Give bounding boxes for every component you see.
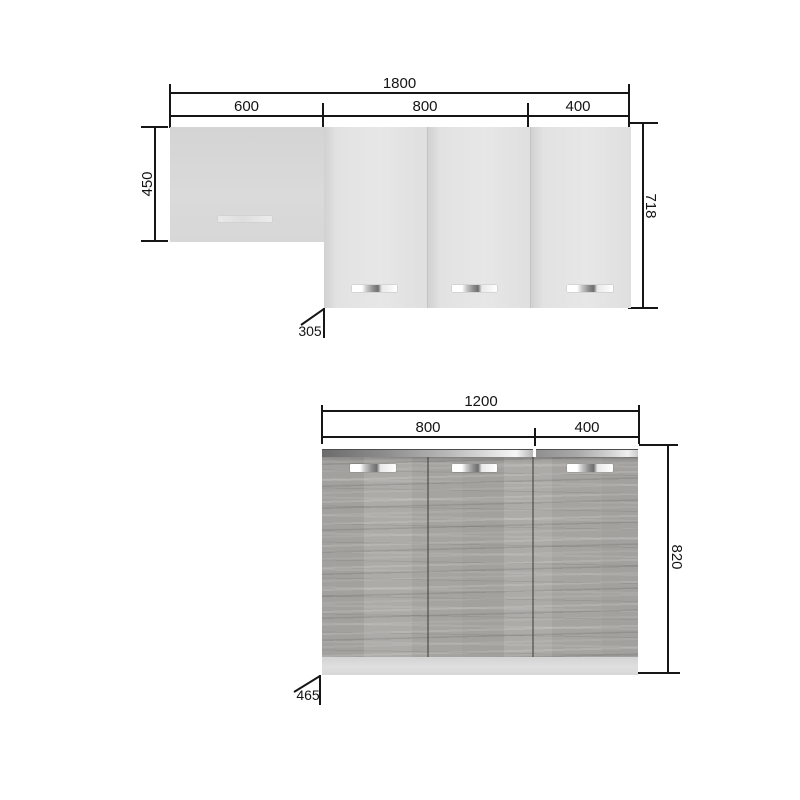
base-door-2-handle — [452, 464, 497, 472]
wall-segment-dim-line — [170, 115, 629, 117]
base-total-width-label: 1200 — [322, 394, 640, 409]
base-countertop-right — [536, 449, 638, 457]
base-countertop-left — [322, 449, 533, 457]
wall-segment-label-800: 800 — [323, 99, 527, 114]
wall-door-2 — [427, 127, 531, 308]
wall-cabinet-600-handle — [218, 216, 272, 222]
wall-door-1 — [324, 127, 427, 308]
wall-total-dim-line — [170, 92, 629, 94]
base-segment-label-800: 800 — [322, 420, 534, 435]
base-door-1-handle — [350, 464, 396, 472]
base-right-height-tick-bottom — [637, 672, 680, 674]
base-segment-label-400: 400 — [535, 420, 639, 435]
wall-door-2-handle — [452, 285, 497, 292]
base-door-seam-2 — [532, 457, 534, 657]
base-depth-label: 465 — [293, 688, 323, 702]
wall-left-height-tick-top — [141, 126, 168, 128]
wall-segment-label-600: 600 — [170, 99, 323, 114]
base-cabinet-front — [322, 457, 638, 657]
base-right-height-label: 820 — [663, 543, 691, 571]
wall-left-height-label: 450 — [133, 170, 161, 198]
base-segment-dim-line — [322, 436, 640, 438]
wall-door-3-handle — [567, 285, 613, 292]
wall-segment-label-400: 400 — [527, 99, 629, 114]
wall-door-1-handle — [352, 285, 397, 292]
base-right-height-tick-top — [639, 444, 678, 446]
base-door-3-handle — [567, 464, 613, 472]
wall-cabinet-tall-front — [324, 127, 630, 308]
dimension-diagram-canvas: 1800 600 800 400 450 718 305 — [0, 0, 800, 800]
wall-cabinet-600-front — [170, 127, 324, 242]
wall-total-width-label: 1800 — [170, 76, 629, 91]
wall-door-3 — [530, 127, 631, 308]
base-door-seam-1 — [427, 457, 429, 657]
wall-right-height-tick-bottom — [628, 307, 658, 309]
wall-right-height-label: 718 — [637, 192, 665, 220]
base-total-dim-line — [322, 410, 640, 412]
wall-right-height-tick-top — [628, 122, 658, 124]
wall-left-height-tick-bottom — [141, 240, 168, 242]
wall-depth-label: 305 — [296, 324, 324, 338]
base-plinth — [322, 657, 638, 675]
